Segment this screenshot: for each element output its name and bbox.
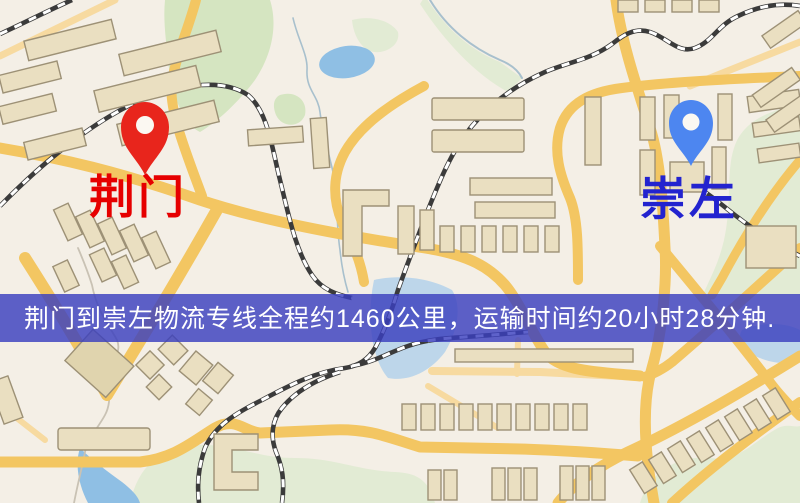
origin-pin-hole xyxy=(136,116,154,134)
destination-label: 崇左 xyxy=(640,173,738,225)
banner-text: 荆门到崇左物流专线全程约1460公里，运输时间约20小时28分钟. xyxy=(24,305,775,333)
destination-pin-hole xyxy=(683,114,700,131)
map-canvas: 荆门 崇左 荆门到崇左物流专线全程约1460公里，运输时间约20小时28分钟. xyxy=(0,0,800,503)
info-banner: 荆门到崇左物流专线全程约1460公里，运输时间约20小时28分钟. xyxy=(0,294,800,342)
map-image: 荆门 崇左 荆门到崇左物流专线全程约1460公里，运输时间约20小时28分钟. xyxy=(0,0,800,503)
origin-label: 荆门 xyxy=(89,171,187,223)
